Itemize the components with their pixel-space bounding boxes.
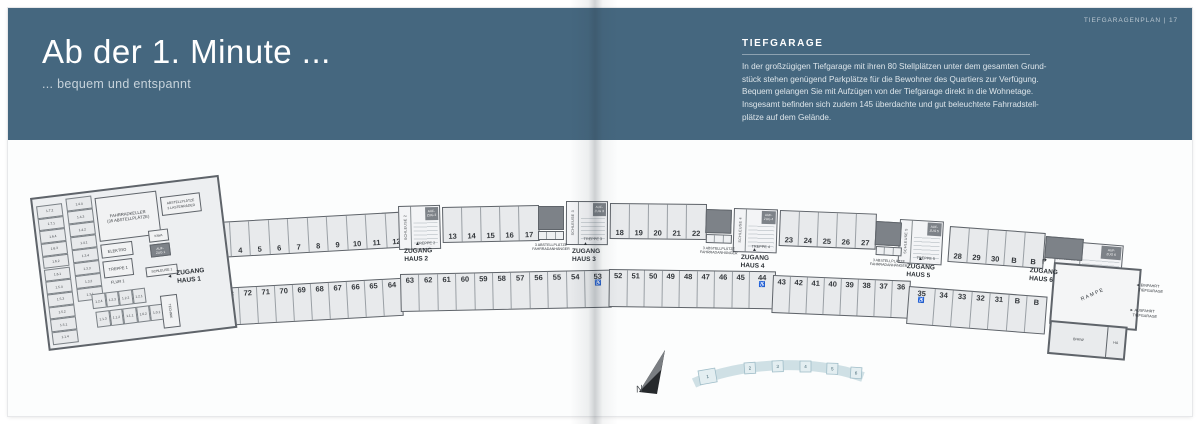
parking-row-segment: 6362616059585756555453♿ — [400, 270, 612, 312]
stall-number: 60 — [461, 276, 469, 284]
cargo-bike-parking: ABSTELLPLÄTZE 3 LASTENRÄDER — [160, 192, 202, 216]
parking-stall: 65 — [365, 280, 385, 317]
trailer-cell — [707, 235, 716, 242]
schleuse-room: SCHLEUSE 1 — [145, 264, 178, 278]
stall-number: 65 — [369, 282, 378, 290]
schleuse-label: SCHLEUSE 4 — [737, 217, 742, 242]
parking-stall: 4 — [229, 221, 250, 256]
stall-number: 37 — [879, 282, 888, 290]
stall-number: 66 — [351, 283, 360, 291]
stall-number: 38 — [862, 282, 871, 290]
plan-label: 3 ABSTELLPLÄTZE FAHRRADANHÄNGER — [870, 258, 908, 269]
plan-label: ZUGANG HAUS 5 — [906, 263, 935, 280]
stall-number: 70 — [279, 287, 288, 295]
stall-number: 50 — [649, 273, 657, 281]
stall-number: B — [1030, 258, 1036, 266]
stall-number: 6 — [277, 244, 282, 252]
trailer-cell — [715, 235, 724, 242]
stall-number: 13 — [448, 232, 456, 240]
parking-stall: 51 — [627, 270, 645, 306]
stall-number: 16 — [505, 231, 513, 239]
parking-stall: 50 — [644, 271, 662, 307]
stall-number: 61 — [442, 276, 450, 284]
minimap-house: 1 — [698, 368, 717, 385]
trailer-cell — [547, 232, 555, 239]
cellar-cell: 1.1.4 — [52, 329, 79, 345]
parking-stall: 29 — [967, 228, 988, 263]
parking-stall: 56 — [530, 272, 549, 308]
shaft-block — [538, 206, 564, 230]
parking-stall: 16 — [500, 206, 520, 240]
schleuse-label: SCHLEUSE 2 — [403, 215, 408, 240]
stall-number: 48 — [684, 273, 692, 281]
stall-number: 69 — [297, 286, 306, 294]
technik-label: TECHNIK — [167, 304, 173, 319]
trailer-cell — [556, 232, 563, 239]
shaft-block — [1044, 236, 1084, 261]
stall-number: 5 — [257, 245, 262, 253]
core-body: AUF- ZUG 3TREPPE 3 — [579, 202, 607, 244]
bhkw-room: BHKW — [1049, 322, 1108, 357]
wheelchair-icon: ♿ — [759, 282, 766, 289]
parking-stall: 11 — [366, 214, 387, 249]
stall-number: 7 — [296, 243, 301, 251]
stall-number: 62 — [424, 276, 432, 284]
plan-label: ▲ — [918, 256, 923, 262]
stall-number: 49 — [666, 273, 674, 281]
elektro-room: ELEKTRO — [100, 241, 133, 259]
cellar-cluster: 1.7.21.7.11.6.41.6.31.6.21.6.11.5.41.5.3… — [30, 175, 237, 351]
stair-room: TREPPE 3 — [581, 218, 605, 242]
stall-number: 71 — [261, 288, 270, 296]
stall-number: 32 — [976, 294, 985, 302]
parking-stall: 25 — [818, 212, 838, 247]
schleuse-label: SCHLEUSE 5 — [903, 229, 908, 255]
stall-number: 24 — [804, 236, 813, 244]
parking-stall: 28 — [948, 227, 969, 262]
parking-stall: 22 — [687, 205, 706, 239]
stall-number: 34 — [939, 291, 948, 299]
stall-number: 25 — [823, 237, 832, 245]
stall-number: 67 — [333, 284, 342, 292]
parking-stall: 26 — [837, 213, 857, 248]
stair-room: TREPPE 5 — [913, 237, 940, 262]
stall-number: B — [1011, 256, 1017, 264]
plan-label: 3 ABSTELLPLÄTZE FAHRRADANHÄNGER — [532, 243, 570, 252]
stall-number: B — [1033, 299, 1039, 307]
elevator-room: AUF- ZUG 2 — [425, 207, 439, 220]
stall-number: 11 — [372, 238, 380, 246]
parking-stall: 19 — [630, 204, 649, 238]
cellar-cell: 1.2.1 — [131, 288, 146, 305]
parking-stall: 37 — [874, 280, 892, 317]
plan-label: ZUGANG HAUS 2 — [404, 247, 433, 263]
parking-stall: 15 — [481, 207, 501, 241]
parking-stall: 42 — [789, 277, 807, 314]
elevator-room: AUF- ZUG 3 — [593, 203, 606, 216]
minimap-house: 5 — [827, 363, 838, 374]
stall-number: 30 — [991, 255, 1000, 263]
stall-number: 33 — [958, 293, 967, 301]
parking-stall: 46 — [714, 271, 732, 307]
parking-stall: 61 — [438, 274, 457, 310]
wheelchair-icon: ♿ — [594, 280, 601, 287]
stall-number: 8 — [316, 242, 321, 250]
parking-stall: 27 — [856, 214, 876, 249]
parking-stall: 23 — [780, 211, 800, 246]
parking-stall: 48 — [679, 271, 697, 307]
parking-stall: 70 — [275, 285, 295, 322]
parking-stall: 66 — [347, 281, 367, 318]
stall-number: 28 — [953, 252, 962, 260]
parking-row-segment: 2324252627 — [779, 210, 877, 250]
stall-number: 42 — [794, 279, 803, 287]
plan-label: ▲ — [415, 241, 420, 247]
core-body: AUF- ZUG 4TREPPE 4 — [746, 209, 777, 252]
plan-label: ZUGANG HAUS 4 — [740, 254, 769, 271]
stall-number: 31 — [995, 296, 1004, 304]
parking-stall-accessible: 44♿ — [749, 272, 774, 308]
garage-floor-plan: N 123456 ♿123456789101112131415161718192… — [0, 0, 1200, 424]
parking-row-segment: 525150494847464544♿ — [608, 269, 775, 309]
plan-label: ▲ — [583, 241, 588, 247]
stall-number: 59 — [479, 275, 487, 283]
stall-number: 64 — [388, 281, 397, 289]
parking-stall: 67 — [329, 282, 349, 319]
stall-number: 54 — [571, 273, 579, 281]
stroller-room: KIWA — [148, 228, 169, 242]
stall-number: 51 — [631, 272, 639, 280]
minimap-house: 4 — [800, 361, 811, 372]
stall-number: 45 — [736, 274, 744, 282]
parking-stall: 68 — [311, 283, 331, 320]
stall-number: 58 — [498, 275, 506, 283]
stair-core: SCHLEUSE 3AUF- ZUG 3TREPPE 3 — [566, 201, 608, 245]
elevator-room: AUF- ZUG 5 — [927, 223, 942, 237]
minimap-house: 2 — [744, 362, 756, 374]
parking-stall: 59 — [475, 273, 494, 309]
parking-stall: 63 — [401, 275, 420, 311]
stall-number: 39 — [845, 281, 854, 289]
parking-stall: 60 — [456, 273, 475, 309]
plan-label: ZUGANG HAUS 3 — [572, 248, 600, 264]
parking-stall: 45 — [732, 272, 750, 308]
parking-stall: 52 — [609, 270, 627, 306]
plant-rooms: BHKWHA — [1047, 320, 1128, 361]
stall-number: 55 — [553, 274, 561, 282]
stall-number: 56 — [534, 274, 542, 282]
parking-stall-accessible: 35♿ — [907, 287, 935, 325]
parking-row-segment: 1819202122 — [610, 203, 707, 240]
core-body: AUF- ZUG 5TREPPE 5 — [911, 221, 943, 265]
parking-stall: 49 — [662, 271, 680, 307]
corridor-label: FLUR 1 — [111, 278, 125, 285]
parking-stall: 69 — [293, 284, 313, 321]
plan-label: ZUGANG HAUS 1 — [176, 267, 206, 285]
stall-number: 21 — [672, 229, 680, 237]
parking-stall: 54 — [567, 271, 586, 307]
parking-row-segment: 1314151617 — [442, 205, 540, 243]
parking-stall: B — [1025, 296, 1046, 333]
trailer-cell — [539, 232, 547, 239]
stall-number: 17 — [525, 231, 533, 239]
plan-label: ◄ — [167, 273, 173, 279]
stall-number: 14 — [467, 232, 475, 240]
parking-stall: 71 — [257, 286, 277, 323]
parking-stall: 14 — [462, 207, 482, 241]
bike-trailer-stalls — [875, 246, 901, 256]
stall-number: 36 — [897, 283, 906, 291]
stall-number: 26 — [842, 238, 851, 246]
parking-stall: 47 — [697, 271, 715, 307]
shaft-block — [705, 209, 732, 234]
parking-stall: 72 — [239, 287, 259, 324]
plan-label: ◄ EINFAHRT TIEFGARAGE — [1135, 283, 1163, 294]
plan-label: ↱ — [1041, 257, 1048, 267]
stall-number: B — [1014, 297, 1020, 305]
parking-stall: 40 — [823, 278, 841, 315]
trailer-cell — [893, 248, 901, 255]
parking-stall: 21 — [668, 205, 687, 239]
stall-number: 15 — [486, 231, 494, 239]
stall-number: 29 — [972, 253, 981, 261]
parking-stall: 55 — [548, 272, 567, 308]
parking-row-segment: 4342414039383736 — [771, 275, 910, 319]
parking-stall: 38 — [857, 280, 875, 317]
parking-stall: 5 — [249, 220, 270, 255]
ha-room: HA — [1106, 327, 1126, 358]
schleuse-room: SCHLEUSE 2 — [399, 207, 412, 249]
technik-room: TECHNIK — [160, 294, 181, 329]
parking-stall: B — [1005, 231, 1026, 266]
stall-number: 47 — [701, 273, 709, 281]
stall-number: 27 — [861, 239, 870, 247]
stall-number: 46 — [719, 274, 727, 282]
parking-stall: 20 — [649, 204, 668, 238]
wheelchair-icon: ♿ — [917, 297, 924, 304]
parking-stall: 17 — [519, 206, 539, 240]
parking-stall: 39 — [840, 279, 858, 316]
minimap-house: 3 — [772, 361, 783, 372]
parking-stall: 62 — [419, 274, 438, 310]
parking-stall: 10 — [346, 215, 367, 250]
stall-number: 68 — [315, 285, 324, 293]
parking-stall: 24 — [799, 212, 819, 247]
plan-label: ► AUSFAHRT TIEFGARAGE — [1129, 308, 1157, 319]
trailer-cell — [723, 236, 731, 243]
stall-number: 52 — [614, 272, 622, 280]
minimap-house: 6 — [850, 367, 862, 379]
stall-number: 22 — [692, 229, 700, 237]
parking-stall: 6 — [268, 219, 289, 254]
plan-label: ▲ — [752, 247, 757, 253]
stall-number: 57 — [516, 274, 524, 282]
schleuse-label: SCHLEUSE 3 — [570, 210, 574, 235]
stall-number: 19 — [634, 229, 642, 237]
elevator-room: AUF- ZUG 6 — [1101, 246, 1122, 261]
parking-stall: 57 — [511, 272, 530, 308]
stall-number: 44 — [758, 274, 766, 282]
stall-number: 18 — [615, 229, 623, 237]
elevator-room: AUF- ZUG 4 — [761, 211, 776, 224]
stall-number: 43 — [777, 278, 786, 286]
stall-number: 9 — [335, 241, 340, 249]
parking-stall: 9 — [327, 216, 348, 251]
bike-trailer-stalls — [538, 231, 564, 240]
stall-number: 63 — [406, 277, 414, 285]
parking-stall: 18 — [611, 204, 630, 238]
stall-number: 23 — [785, 236, 794, 244]
parking-stall: 41 — [806, 277, 824, 314]
stall-number: 72 — [243, 289, 252, 297]
site-key-map: 123456 — [688, 350, 870, 394]
schleuse-room: SCHLEUSE 3 — [567, 202, 579, 244]
parking-stall: 58 — [493, 273, 512, 309]
stall-number: 10 — [353, 239, 362, 247]
plan-label: 3 ABSTELLPLÄTZE FAHRRADANHÄNGER — [700, 246, 738, 256]
shaft-block — [875, 221, 902, 246]
parking-stall: 30 — [986, 230, 1007, 265]
parking-row-segment: 282930BB — [947, 226, 1045, 269]
parking-stall-accessible: 53♿ — [585, 271, 611, 308]
elevator-room: AUF- ZUG 1 — [150, 242, 171, 257]
stair-room: TREPPE 1 — [102, 258, 134, 279]
parking-row-segment: 35♿34333231BB — [906, 286, 1047, 335]
stall-number: 41 — [811, 280, 820, 288]
stall-number: 20 — [653, 229, 661, 237]
parking-stall: 43 — [772, 276, 790, 313]
parking-stall: 13 — [443, 208, 463, 242]
bike-trailer-stalls — [706, 234, 732, 244]
stall-number: 4 — [238, 246, 243, 254]
stall-number: 40 — [828, 280, 837, 288]
parking-stall: 7 — [288, 218, 309, 253]
plan-label: ZUGANG HAUS 6 — [1029, 267, 1058, 285]
parking-stall: 8 — [307, 217, 328, 252]
